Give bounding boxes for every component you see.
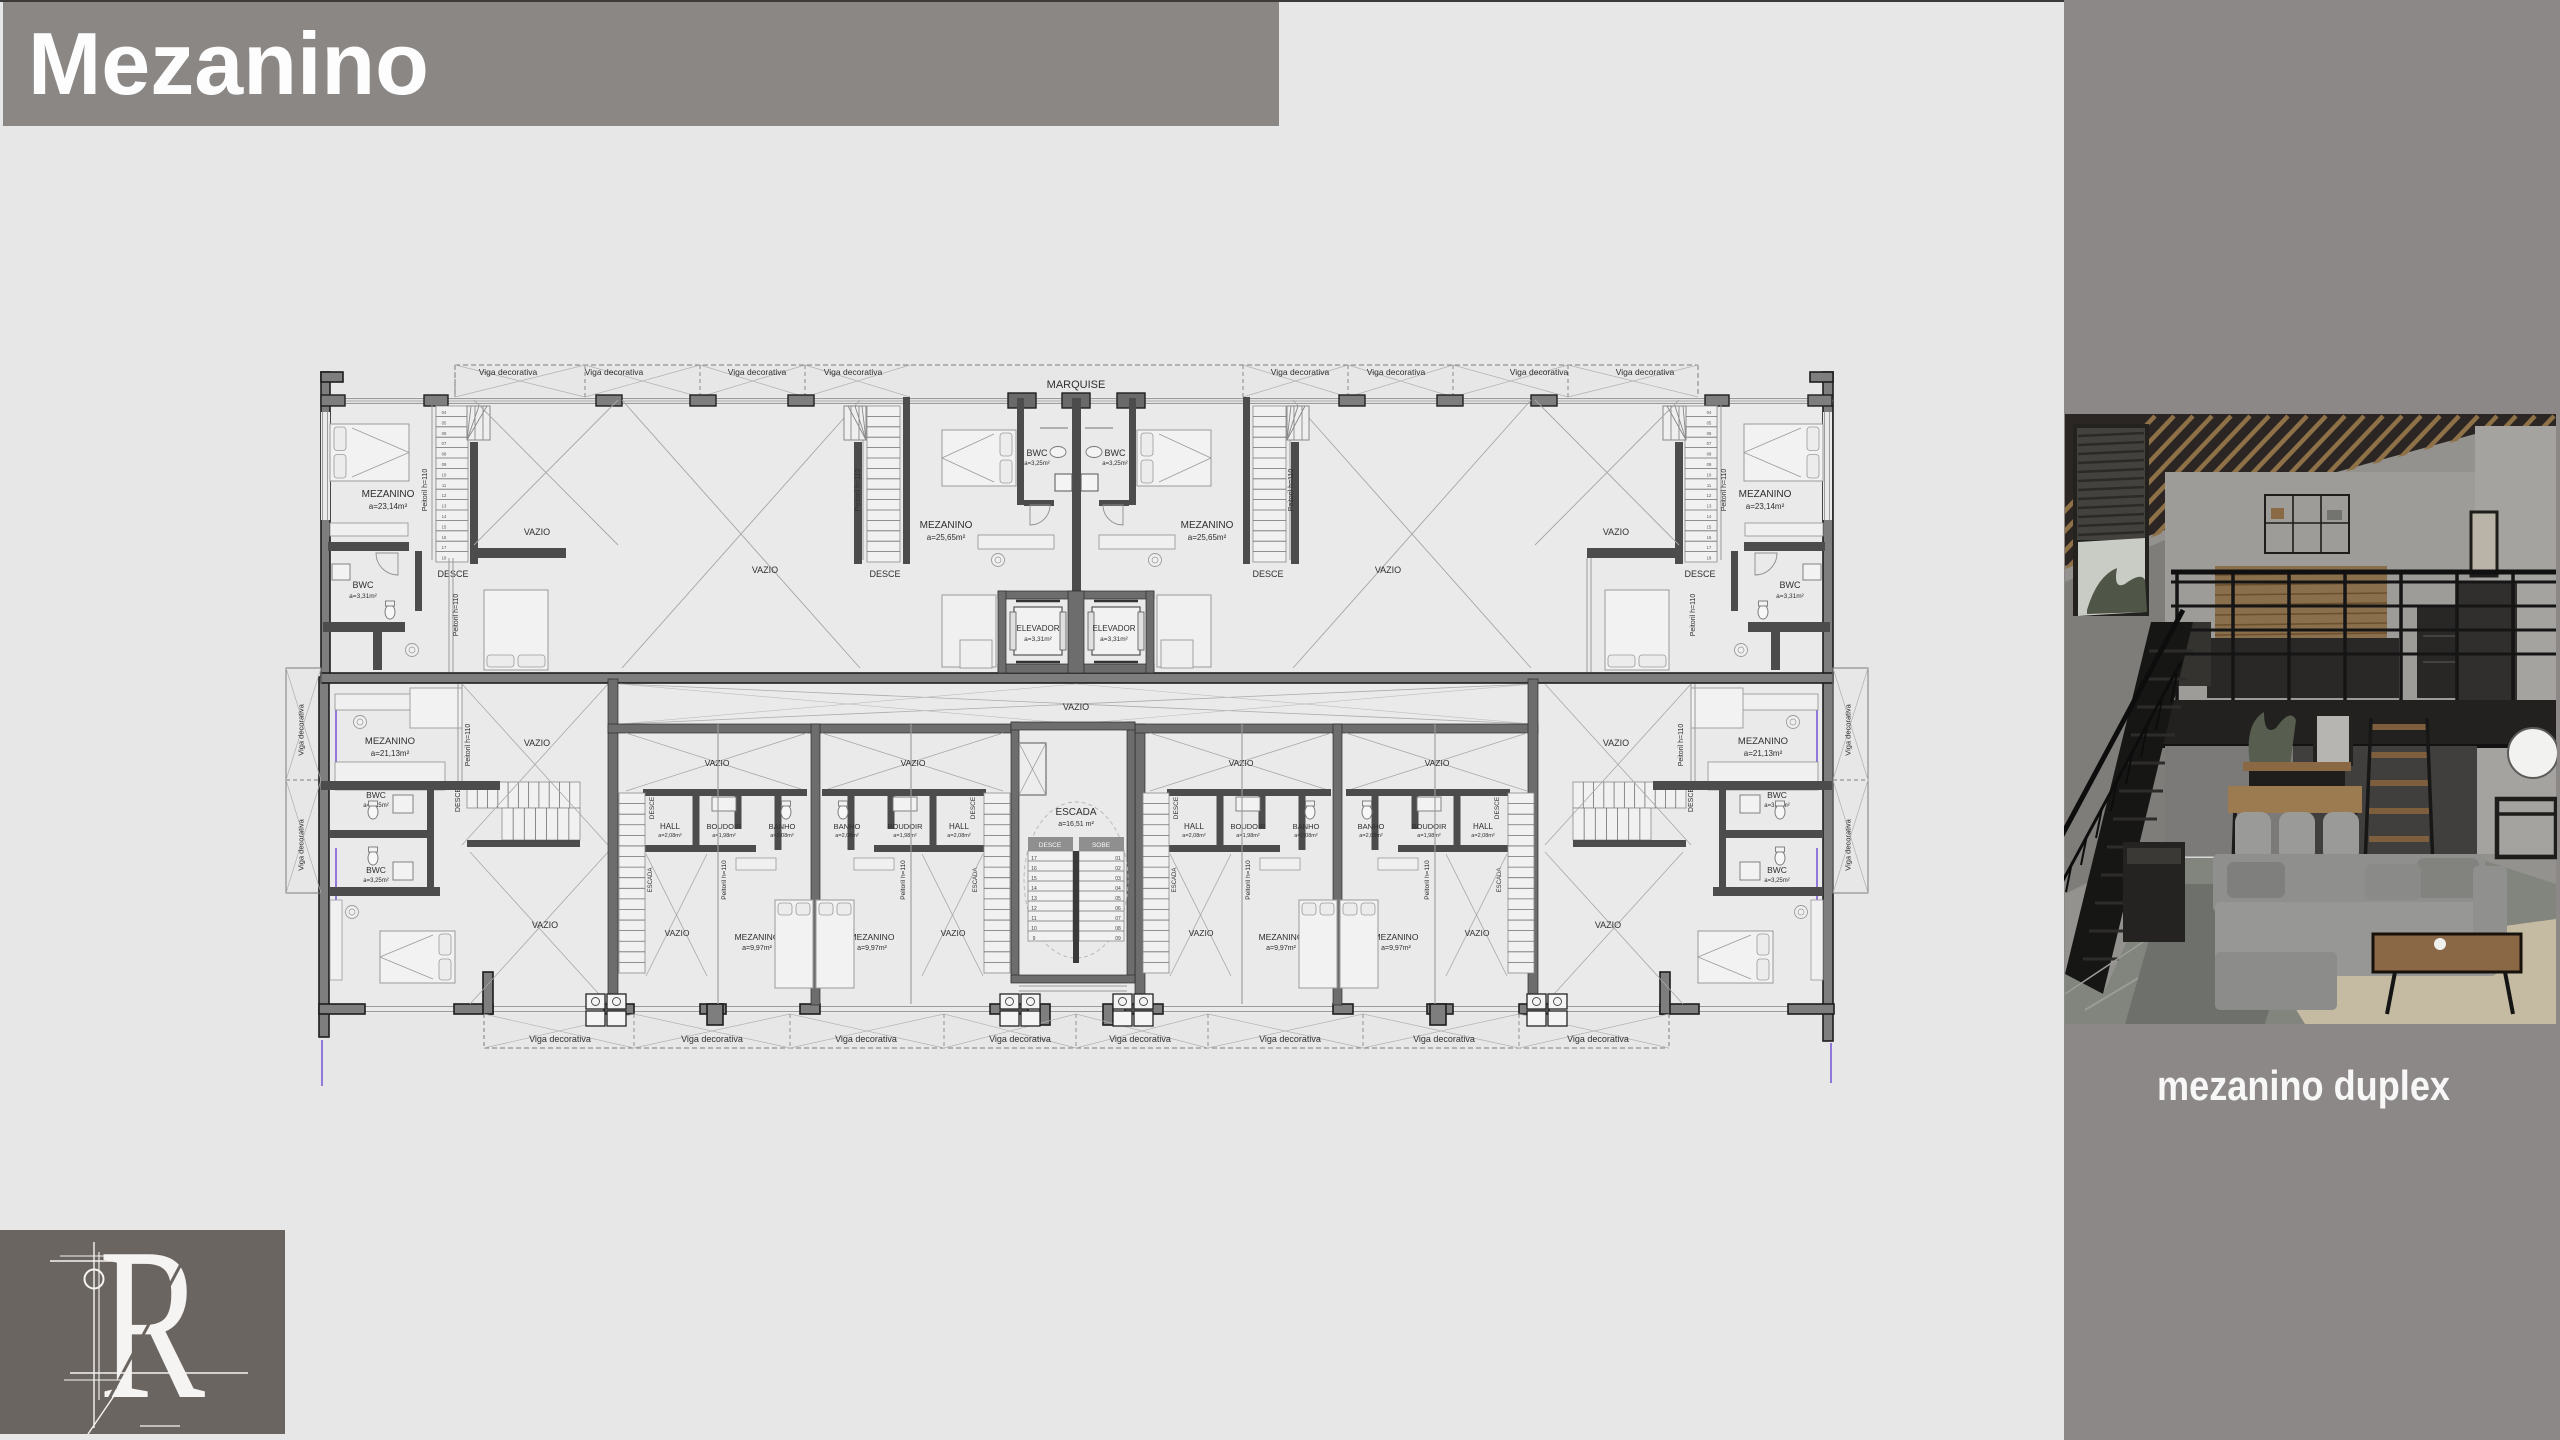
- svg-text:Viga decorativa: Viga decorativa: [479, 367, 538, 377]
- svg-text:BANHO: BANHO: [834, 822, 861, 831]
- svg-text:08: 08: [442, 452, 447, 457]
- svg-text:a=16,51 m²: a=16,51 m²: [1058, 821, 1094, 828]
- svg-text:MEZANINO: MEZANINO: [920, 520, 973, 531]
- svg-text:DESCE: DESCE: [1684, 569, 1715, 579]
- svg-text:VAZIO: VAZIO: [665, 928, 690, 938]
- svg-text:13: 13: [1707, 504, 1712, 509]
- svg-text:a=1,98m²: a=1,98m²: [893, 833, 917, 839]
- svg-text:ESCADA: ESCADA: [648, 868, 654, 893]
- svg-text:ESCADA: ESCADA: [1172, 868, 1178, 893]
- svg-text:MEZANINO: MEZANINO: [1259, 932, 1304, 942]
- svg-text:VAZIO: VAZIO: [1465, 928, 1490, 938]
- svg-text:07: 07: [442, 441, 447, 446]
- svg-text:DESCE: DESCE: [1039, 842, 1062, 849]
- svg-text:04: 04: [1707, 410, 1712, 415]
- svg-text:17: 17: [442, 545, 447, 550]
- svg-text:a=23,14m²: a=23,14m²: [369, 502, 408, 511]
- svg-text:DESCE: DESCE: [1494, 796, 1501, 819]
- svg-text:a=2,08m²: a=2,08m²: [835, 833, 859, 839]
- svg-text:MEZANINO: MEZANINO: [735, 932, 780, 942]
- svg-text:14: 14: [1707, 514, 1712, 519]
- svg-text:MEZANINO: MEZANINO: [1181, 520, 1234, 531]
- svg-text:07: 07: [1115, 916, 1121, 922]
- svg-text:Peitoril h=110: Peitoril h=110: [465, 724, 472, 767]
- svg-text:DESCE: DESCE: [970, 796, 977, 819]
- svg-text:01: 01: [1115, 856, 1121, 862]
- svg-text:BOUDOIR: BOUDOIR: [706, 822, 742, 831]
- svg-text:15: 15: [1707, 524, 1712, 529]
- svg-text:Viga decorativa: Viga decorativa: [529, 1034, 591, 1044]
- svg-text:Viga decorativa: Viga decorativa: [681, 1034, 743, 1044]
- svg-text:Viga decorativa: Viga decorativa: [1109, 1034, 1171, 1044]
- svg-text:a=2,08m²: a=2,08m²: [658, 833, 682, 839]
- svg-text:a=2,08m²: a=2,08m²: [947, 833, 971, 839]
- svg-text:a=1,98m²: a=1,98m²: [1236, 833, 1260, 839]
- svg-text:06: 06: [1707, 431, 1712, 436]
- svg-text:a=9,97m²: a=9,97m²: [857, 945, 887, 952]
- svg-text:Peitoril h=110: Peitoril h=110: [1288, 469, 1295, 512]
- svg-text:VAZIO: VAZIO: [752, 565, 778, 575]
- svg-text:MEZANINO: MEZANINO: [362, 489, 415, 500]
- svg-text:BWC: BWC: [1767, 790, 1787, 800]
- svg-text:BWC: BWC: [1767, 865, 1787, 875]
- svg-text:Viga decorativa: Viga decorativa: [297, 818, 306, 870]
- svg-text:BWC: BWC: [366, 865, 386, 875]
- svg-text:BOUDOIR: BOUDOIR: [1411, 822, 1447, 831]
- svg-text:02: 02: [1115, 866, 1121, 872]
- svg-text:04: 04: [442, 410, 447, 415]
- svg-text:a=21,13m²: a=21,13m²: [371, 749, 410, 758]
- svg-text:VAZIO: VAZIO: [524, 738, 550, 748]
- svg-text:9: 9: [1033, 936, 1036, 942]
- svg-text:VAZIO: VAZIO: [1425, 758, 1450, 768]
- svg-text:a=3,31m²: a=3,31m²: [349, 593, 377, 600]
- svg-text:Viga decorativa: Viga decorativa: [297, 703, 306, 755]
- svg-text:05: 05: [442, 420, 447, 425]
- svg-text:VAZIO: VAZIO: [901, 758, 926, 768]
- svg-text:a=25,65m²: a=25,65m²: [1188, 533, 1227, 542]
- svg-text:VAZIO: VAZIO: [1063, 702, 1089, 712]
- svg-text:HALL: HALL: [1473, 822, 1494, 831]
- svg-text:08: 08: [1707, 452, 1712, 457]
- svg-text:a=9,97m²: a=9,97m²: [1266, 945, 1296, 952]
- svg-text:DESCE: DESCE: [649, 796, 656, 819]
- svg-text:12: 12: [1707, 493, 1712, 498]
- svg-text:a=2,08m²: a=2,08m²: [770, 833, 794, 839]
- svg-text:Viga decorativa: Viga decorativa: [728, 367, 787, 377]
- svg-text:BWC: BWC: [1027, 448, 1048, 458]
- svg-text:Viga decorativa: Viga decorativa: [1844, 703, 1853, 755]
- svg-text:VAZIO: VAZIO: [1603, 527, 1629, 537]
- svg-text:a=1,98m²: a=1,98m²: [712, 833, 736, 839]
- svg-text:a=21,13m²: a=21,13m²: [1744, 749, 1783, 758]
- svg-text:DESCE: DESCE: [455, 788, 462, 812]
- svg-text:03: 03: [1115, 876, 1121, 882]
- svg-text:a=3,25m²: a=3,25m²: [1102, 461, 1128, 467]
- svg-text:DESCE: DESCE: [1173, 796, 1180, 819]
- svg-text:ELEVADOR: ELEVADOR: [1093, 624, 1136, 633]
- svg-text:18: 18: [442, 556, 447, 561]
- svg-text:a=2,08m²: a=2,08m²: [1471, 833, 1495, 839]
- svg-text:Peitoril h=110: Peitoril h=110: [422, 469, 429, 512]
- svg-text:HALL: HALL: [1184, 822, 1205, 831]
- svg-text:Viga decorativa: Viga decorativa: [1616, 367, 1675, 377]
- svg-text:HALL: HALL: [660, 822, 681, 831]
- svg-text:a=3,31m²: a=3,31m²: [1024, 636, 1052, 643]
- svg-text:Viga decorativa: Viga decorativa: [835, 1034, 897, 1044]
- svg-text:MEZANINO: MEZANINO: [850, 932, 895, 942]
- svg-text:Viga decorativa: Viga decorativa: [585, 367, 644, 377]
- svg-text:a=3,31m²: a=3,31m²: [1776, 593, 1804, 600]
- svg-text:a=3,25m²: a=3,25m²: [1764, 878, 1790, 884]
- svg-text:a=2,08m²: a=2,08m²: [1182, 833, 1206, 839]
- svg-text:16: 16: [1031, 866, 1037, 872]
- svg-text:a=3,25m²: a=3,25m²: [363, 878, 389, 884]
- svg-text:MARQUISE: MARQUISE: [1047, 379, 1106, 391]
- svg-text:09: 09: [1707, 462, 1712, 467]
- svg-text:Viga decorativa: Viga decorativa: [824, 367, 883, 377]
- svg-text:VAZIO: VAZIO: [941, 928, 966, 938]
- svg-text:DESCE: DESCE: [1688, 788, 1695, 812]
- svg-text:a=3,31m²: a=3,31m²: [1100, 636, 1128, 643]
- svg-text:MEZANINO: MEZANINO: [1374, 932, 1419, 942]
- svg-text:18: 18: [1707, 556, 1712, 561]
- svg-text:15: 15: [442, 524, 447, 529]
- svg-text:15: 15: [1031, 876, 1037, 882]
- svg-text:06: 06: [1115, 906, 1121, 912]
- svg-text:12: 12: [442, 493, 447, 498]
- svg-text:06: 06: [442, 431, 447, 436]
- svg-text:17: 17: [1707, 545, 1712, 550]
- svg-text:MEZANINO: MEZANINO: [1739, 489, 1792, 500]
- svg-text:VAZIO: VAZIO: [705, 758, 730, 768]
- svg-text:10: 10: [1707, 472, 1712, 477]
- svg-text:a=9,97m²: a=9,97m²: [1381, 945, 1411, 952]
- svg-text:a=2,08m²: a=2,08m²: [1294, 833, 1318, 839]
- svg-text:BWC: BWC: [366, 790, 386, 800]
- svg-text:07: 07: [1707, 441, 1712, 446]
- svg-text:a=9,97m²: a=9,97m²: [742, 945, 772, 952]
- svg-text:14: 14: [442, 514, 447, 519]
- svg-text:a=3,25m²: a=3,25m²: [1024, 461, 1050, 467]
- svg-text:05: 05: [1115, 896, 1121, 902]
- svg-text:Peitoril h=110: Peitoril h=110: [721, 860, 728, 900]
- svg-text:a=23,14m²: a=23,14m²: [1746, 502, 1785, 511]
- svg-text:DESCE: DESCE: [1252, 569, 1283, 579]
- svg-text:VAZIO: VAZIO: [524, 527, 550, 537]
- svg-text:Viga decorativa: Viga decorativa: [1367, 367, 1426, 377]
- svg-text:VAZIO: VAZIO: [1375, 565, 1401, 575]
- svg-text:BANHO: BANHO: [1358, 822, 1385, 831]
- svg-text:MEZANINO: MEZANINO: [1738, 736, 1788, 747]
- svg-text:16: 16: [442, 535, 447, 540]
- svg-text:SOBE: SOBE: [1092, 842, 1111, 849]
- svg-text:ESCADA: ESCADA: [1055, 807, 1096, 818]
- svg-text:10: 10: [442, 472, 447, 477]
- svg-text:14: 14: [1031, 886, 1037, 892]
- svg-text:17: 17: [1031, 856, 1037, 862]
- svg-text:Viga decorativa: Viga decorativa: [1413, 1034, 1475, 1044]
- svg-text:a=2,08m²: a=2,08m²: [1359, 833, 1383, 839]
- svg-text:BWC: BWC: [1105, 448, 1126, 458]
- svg-text:Peitoril h=110: Peitoril h=110: [453, 594, 460, 637]
- svg-text:09: 09: [1115, 936, 1121, 942]
- svg-text:13: 13: [442, 504, 447, 509]
- svg-text:ELEVADOR: ELEVADOR: [1017, 624, 1060, 633]
- svg-text:VAZIO: VAZIO: [1603, 738, 1629, 748]
- svg-text:11: 11: [1031, 916, 1036, 922]
- svg-text:10: 10: [1031, 926, 1037, 932]
- svg-text:13: 13: [1031, 896, 1037, 902]
- svg-text:Peitoril h=110: Peitoril h=110: [900, 860, 907, 900]
- svg-text:VAZIO: VAZIO: [1189, 928, 1214, 938]
- svg-text:Viga decorativa: Viga decorativa: [1271, 367, 1330, 377]
- svg-text:Viga decorativa: Viga decorativa: [1844, 818, 1853, 870]
- svg-text:Viga decorativa: Viga decorativa: [1259, 1034, 1321, 1044]
- svg-text:08: 08: [1115, 926, 1121, 932]
- svg-text:09: 09: [442, 462, 447, 467]
- svg-text:BOUDOIR: BOUDOIR: [887, 822, 923, 831]
- svg-text:05: 05: [1707, 420, 1712, 425]
- svg-text:Viga decorativa: Viga decorativa: [1567, 1034, 1629, 1044]
- svg-text:BANHO: BANHO: [769, 822, 796, 831]
- svg-text:12: 12: [1031, 906, 1037, 912]
- svg-text:Peitoril h=110: Peitoril h=110: [1721, 469, 1728, 512]
- svg-text:Viga decorativa: Viga decorativa: [989, 1034, 1051, 1044]
- svg-text:Peitoril h=110: Peitoril h=110: [1424, 860, 1431, 900]
- svg-text:Peitoril h=110: Peitoril h=110: [1245, 860, 1252, 900]
- svg-text:a=1,98m²: a=1,98m²: [1417, 833, 1441, 839]
- svg-text:VAZIO: VAZIO: [1595, 920, 1621, 930]
- svg-text:Peitoril h=110: Peitoril h=110: [855, 469, 862, 512]
- svg-text:DESCE: DESCE: [869, 569, 900, 579]
- svg-text:11: 11: [442, 483, 447, 488]
- svg-text:Peitoril h=110: Peitoril h=110: [1678, 724, 1685, 767]
- svg-text:VAZIO: VAZIO: [532, 920, 558, 930]
- svg-text:Peitoril h=110: Peitoril h=110: [1690, 594, 1697, 637]
- svg-text:16: 16: [1707, 535, 1712, 540]
- svg-text:04: 04: [1115, 886, 1121, 892]
- svg-text:BOUDOIR: BOUDOIR: [1230, 822, 1266, 831]
- svg-text:BWC: BWC: [1780, 580, 1801, 590]
- svg-text:BWC: BWC: [353, 580, 374, 590]
- svg-text:BANHO: BANHO: [1293, 822, 1320, 831]
- svg-text:HALL: HALL: [949, 822, 970, 831]
- svg-text:VAZIO: VAZIO: [1229, 758, 1254, 768]
- svg-text:a=25,65m²: a=25,65m²: [927, 533, 966, 542]
- svg-text:11: 11: [1707, 483, 1712, 488]
- svg-text:Viga decorativa: Viga decorativa: [1510, 367, 1569, 377]
- svg-text:MEZANINO: MEZANINO: [365, 736, 415, 747]
